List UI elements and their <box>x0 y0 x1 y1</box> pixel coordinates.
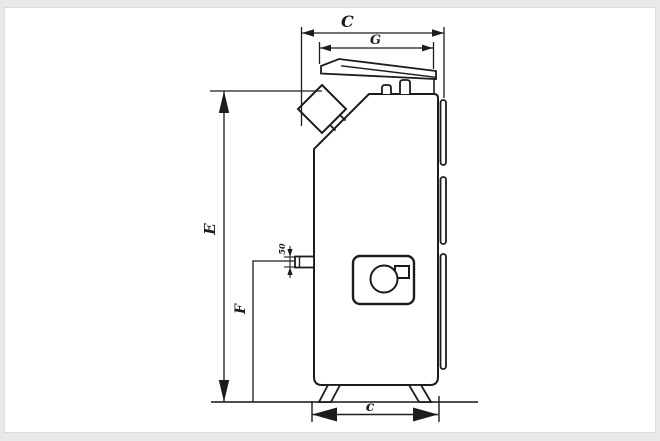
dimension-E <box>210 91 322 402</box>
arrow-left-icon <box>312 408 337 422</box>
arrow-right-icon <box>422 45 433 52</box>
hinge-strip-top <box>441 100 447 165</box>
hinge-strip-bottom <box>441 254 447 369</box>
lid-hinge-left <box>382 85 391 94</box>
dim-label-C: C <box>341 12 354 31</box>
boiler-body-group <box>295 59 446 402</box>
arrow-right-icon <box>413 408 438 422</box>
arrow-left-icon <box>302 29 314 37</box>
foot-left <box>319 385 340 402</box>
arrow-up-icon <box>287 267 292 275</box>
burner-opening <box>371 266 398 293</box>
boiler-body <box>314 94 438 385</box>
dim-label-F: F <box>233 303 249 315</box>
arrow-up-icon <box>219 91 229 113</box>
hinge-strip-middle <box>441 177 447 244</box>
dim-label-G: G <box>370 33 381 48</box>
top-lid <box>321 59 436 79</box>
arrow-down-icon <box>219 380 229 402</box>
lid-hinge-right <box>400 80 410 94</box>
return-stub <box>295 257 314 268</box>
arrow-right-icon <box>432 29 444 37</box>
dim-label-E: E <box>201 223 219 236</box>
foot-right <box>409 385 431 402</box>
dim-label-c: c <box>366 399 375 415</box>
arrow-left-icon <box>320 45 331 52</box>
dimension-F <box>253 261 294 402</box>
dim-label-50: 50 <box>277 243 287 255</box>
boiler-technical-drawing: C G E F 50 c <box>1 1 660 441</box>
arrow-down-icon <box>287 249 292 257</box>
drawing-canvas: C G E F 50 c <box>4 7 656 433</box>
